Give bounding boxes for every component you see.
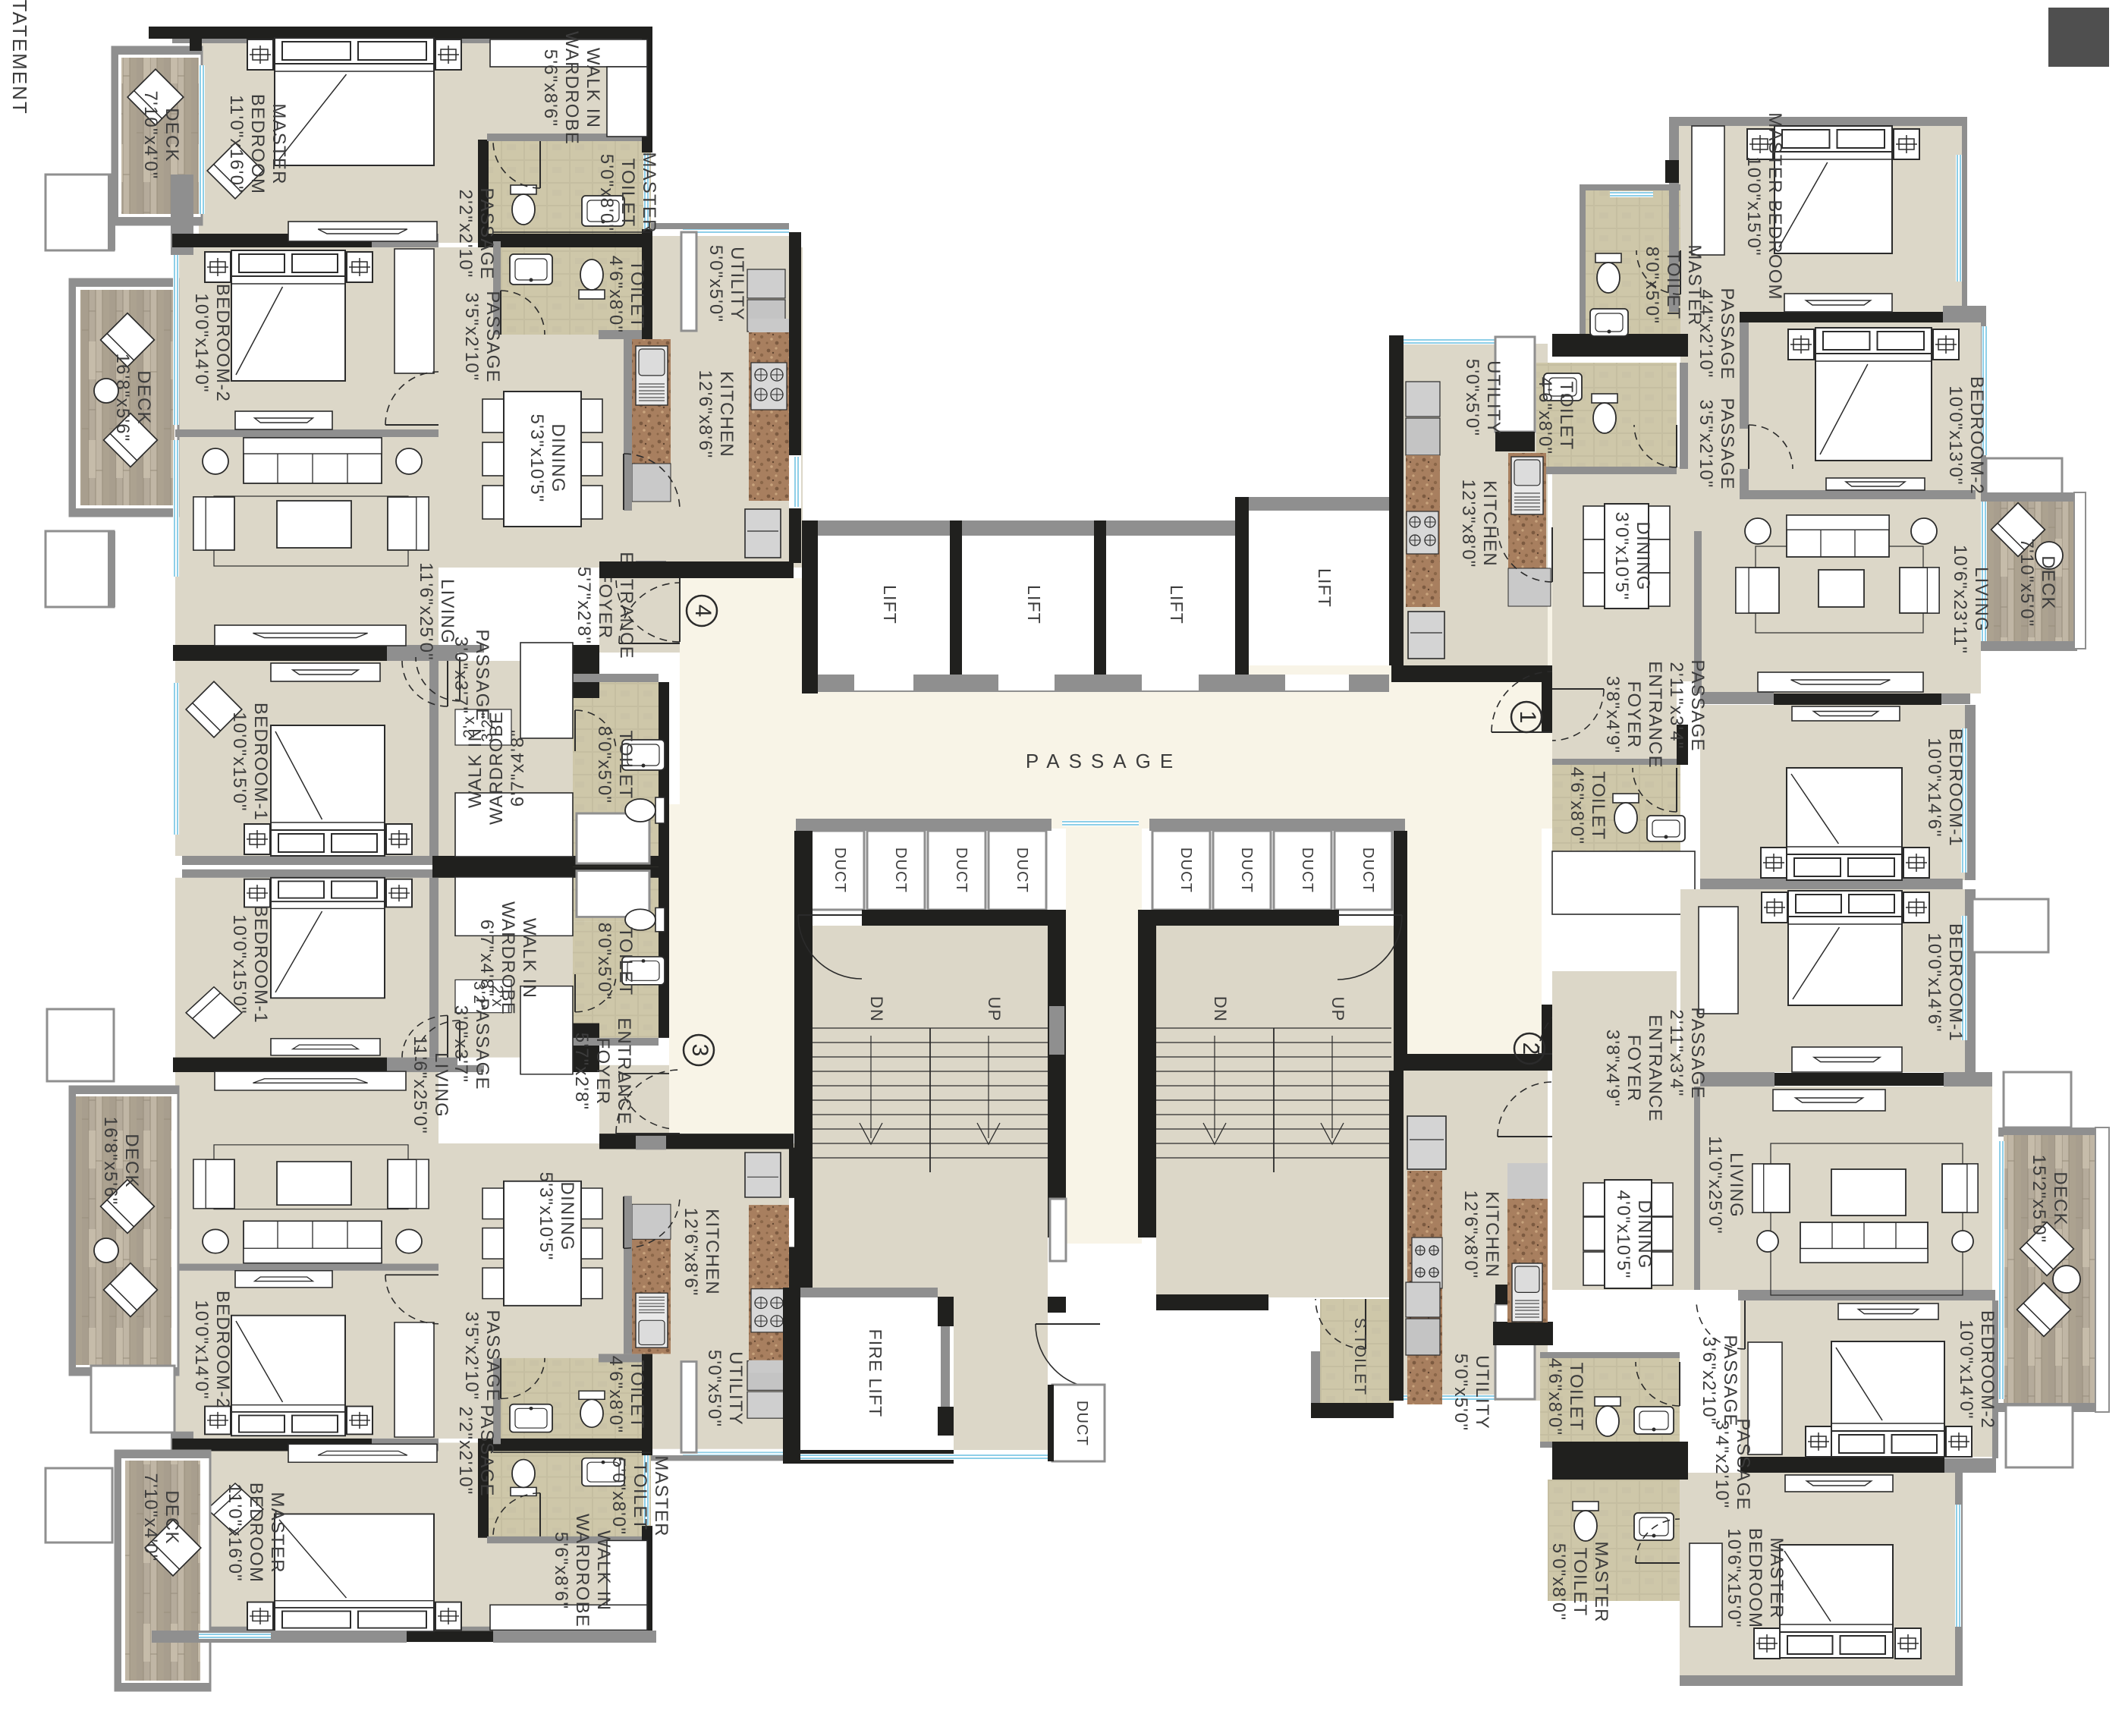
svg-text:BEDROOM-1: BEDROOM-1 [1945,728,1966,847]
svg-text:2'x: 2'x [461,715,478,738]
svg-text:5'0"x8'0": 5'0"x8'0" [608,1458,629,1535]
svg-text:TOILET: TOILET [1663,251,1683,320]
svg-text:TOILET: TOILET [627,1360,647,1429]
svg-text:2'x: 2'x [489,985,506,1008]
svg-text:6'7"x4'8": 6'7"x4'8" [508,729,528,807]
svg-text:PASSAGE: PASSAGE [483,1310,503,1401]
svg-text:PASSAGE: PASSAGE [1687,659,1708,751]
svg-text:DECK: DECK [162,1490,182,1544]
svg-text:BEDROOM: BEDROOM [247,94,268,194]
svg-text:5'6"x8'6": 5'6"x8'6" [540,49,561,127]
svg-text:DINING: DINING [557,1181,577,1250]
svg-text:FOYER: FOYER [1624,681,1644,749]
svg-text:12'3"x8'0": 12'3"x8'0" [1458,480,1479,568]
svg-text:5'0"x5'0": 5'0"x5'0" [1451,1354,1471,1431]
svg-text:FIRE LIFT: FIRE LIFT [866,1329,885,1418]
svg-text:16'8"x5'6": 16'8"x5'6" [112,354,133,442]
svg-text:LIVING: LIVING [431,1052,451,1118]
svg-text:7'10"x4'0": 7'10"x4'0" [140,1473,161,1562]
svg-text:UTILITY: UTILITY [1472,1355,1492,1429]
svg-text:BEDROOM-2: BEDROOM-2 [212,1291,233,1409]
svg-text:3'0"x3'7": 3'0"x3'7" [451,1005,471,1083]
svg-text:2'11"x3'4": 2'11"x3'4" [1666,662,1686,749]
svg-text:PASSAGE: PASSAGE [472,629,492,721]
svg-text:10'0"x14'0": 10'0"x14'0" [191,293,212,393]
svg-text:DUCT: DUCT [831,848,848,893]
svg-text:DUCT: DUCT [892,848,909,893]
svg-text:DECK: DECK [2050,1171,2070,1225]
svg-text:LIFT: LIFT [1024,585,1044,624]
svg-text:3'8"x4'9": 3'8"x4'9" [1602,676,1623,753]
svg-text:STATEMENT: STATEMENT [8,0,31,115]
svg-text:DUCT: DUCT [1299,848,1316,893]
svg-text:7'10"x4'0": 7'10"x4'0" [140,91,161,180]
svg-text:TOILET: TOILET [1556,382,1576,451]
svg-text:5'0"x5'0": 5'0"x5'0" [704,1350,725,1427]
svg-text:DUCT: DUCT [1177,848,1194,893]
svg-text:KITCHEN: KITCHEN [1479,480,1500,567]
svg-text:2'2"x2'10": 2'2"x2'10" [455,190,476,278]
svg-text:4'6"x8'0": 4'6"x8'0" [1545,1358,1565,1436]
svg-text:5'0"x5'0": 5'0"x5'0" [706,245,726,322]
svg-text:3'6"x2'10": 3'6"x2'10" [1699,1337,1719,1426]
svg-text:FOYER: FOYER [1624,1035,1644,1102]
svg-text:PASSAGE: PASSAGE [483,291,503,382]
svg-text:12'6"x8'0": 12'6"x8'0" [1460,1190,1481,1279]
svg-text:5'7"x2'8": 5'7"x2'8" [571,1033,592,1110]
svg-text:3: 3 [687,1044,712,1057]
svg-text:ENTRANCE: ENTRANCE [1645,1014,1665,1122]
svg-text:LIFT: LIFT [880,585,900,624]
svg-text:3'4"x2'10": 3'4"x2'10" [1712,1420,1732,1509]
svg-text:2'2"x2'10": 2'2"x2'10" [455,1407,476,1495]
svg-text:KITCHEN: KITCHEN [1482,1191,1502,1278]
svg-text:FOYER: FOYER [593,1038,613,1105]
svg-text:PASSAGE: PASSAGE [472,998,492,1090]
svg-text:WALK IN: WALK IN [519,918,539,999]
svg-text:WARDROBE: WARDROBE [572,1514,593,1627]
svg-text:UP: UP [1328,997,1347,1022]
svg-text:10'0"x15'0": 10'0"x15'0" [229,712,250,812]
svg-text:5'6"x8'6": 5'6"x8'6" [551,1532,571,1609]
svg-text:TOILET: TOILET [615,927,636,996]
svg-text:LIFT: LIFT [1167,585,1187,624]
svg-text:4'6"x8'0": 4'6"x8'0" [1535,377,1555,454]
svg-text:DECK: DECK [162,108,182,162]
svg-text:3'2": 3'2" [479,712,496,742]
svg-text:5'3"x10'5": 5'3"x10'5" [527,414,547,503]
svg-text:PASSAGE: PASSAGE [476,1404,497,1496]
svg-text:5'0"x8'0": 5'0"x8'0" [596,154,617,231]
svg-text:TOILET: TOILET [1566,1363,1586,1432]
svg-text:11'6"x25'0": 11'6"x25'0" [410,1036,430,1134]
svg-text:DECK: DECK [134,370,154,424]
svg-text:DN: DN [1211,996,1230,1022]
svg-text:WARDROBE: WARDROBE [561,31,582,145]
svg-text:BEDROOM-2: BEDROOM-2 [212,284,233,402]
svg-text:10'0"x15'0": 10'0"x15'0" [1743,156,1764,256]
svg-text:3'0"x3'7": 3'0"x3'7" [451,637,471,714]
svg-text:TOILET: TOILET [627,260,647,329]
svg-text:3'5"x2'10": 3'5"x2'10" [461,1312,482,1401]
svg-text:DUCT: DUCT [953,848,970,893]
svg-text:ENTRANCE: ENTRANCE [1645,661,1665,769]
svg-text:BEDROOM-1: BEDROOM-1 [250,905,271,1024]
svg-text:LIVING: LIVING [1726,1153,1746,1218]
svg-text:10'0"x13'0": 10'0"x13'0" [1945,385,1966,486]
svg-text:12'6"x8'6": 12'6"x8'6" [681,1208,701,1297]
svg-text:BEDROOM-2: BEDROOM-2 [1977,1310,1998,1429]
svg-text:2'11"x3'4": 2'11"x3'4" [1666,1009,1686,1096]
svg-text:4'6"x8'0": 4'6"x8'0" [605,1356,626,1433]
svg-text:5'3"x10'5": 5'3"x10'5" [536,1172,556,1261]
svg-text:PASSAGE: PASSAGE [1733,1418,1753,1510]
svg-text:DUCT: DUCT [1014,848,1030,893]
svg-text:BEDROOM-1: BEDROOM-1 [1945,923,1966,1042]
svg-text:FOYER: FOYER [595,572,615,640]
svg-text:3'5"x2'10": 3'5"x2'10" [461,293,482,382]
svg-text:10'0"x14'6": 10'0"x14'6" [1924,737,1944,838]
svg-text:11'0"x16'0": 11'0"x16'0" [225,1483,245,1582]
svg-text:DINING: DINING [1634,1200,1655,1269]
svg-text:PASSAGE: PASSAGE [1717,398,1737,489]
svg-text:3'8"x4'9": 3'8"x4'9" [1602,1030,1623,1107]
svg-text:3'5"x2'10": 3'5"x2'10" [1696,400,1716,489]
svg-text:10'0"x15'0": 10'0"x15'0" [229,914,250,1014]
svg-text:UTILITY: UTILITY [725,1351,746,1426]
svg-text:10'6"x23'11": 10'6"x23'11" [1950,545,1970,654]
svg-text:BEDROOM: BEDROOM [1745,1528,1765,1628]
svg-text:ENTRANCE: ENTRANCE [614,1017,634,1125]
svg-text:KITCHEN: KITCHEN [716,371,737,458]
svg-text:11'0"x25'0": 11'0"x25'0" [1705,1136,1725,1234]
svg-text:WALK IN: WALK IN [583,48,603,128]
svg-text:BEDROOM-1: BEDROOM-1 [250,703,271,821]
svg-text:DUCT: DUCT [1074,1401,1090,1446]
svg-text:8'0"x5'0": 8'0"x5'0" [594,923,615,1000]
svg-text:DECK: DECK [2038,555,2058,609]
svg-text:10'0"x14'0": 10'0"x14'0" [191,1300,212,1400]
svg-text:1: 1 [1515,711,1540,724]
svg-text:4'0"x10'5": 4'0"x10'5" [1613,1190,1633,1279]
svg-text:MASTER: MASTER [651,1455,671,1536]
svg-text:PASSAGE: PASSAGE [1720,1335,1740,1426]
svg-text:7'10"x5'0": 7'10"x5'0" [2017,539,2037,627]
svg-text:DECK: DECK [121,1134,142,1187]
svg-text:11'6"x25'0": 11'6"x25'0" [416,562,436,661]
svg-text:10'6"x15'0": 10'6"x15'0" [1724,1528,1744,1628]
svg-text:DUCT: DUCT [1360,848,1376,893]
svg-text:S.TOILET: S.TOILET [1351,1318,1369,1396]
svg-text:UP: UP [985,997,1004,1022]
svg-text:4'6"x8'0": 4'6"x8'0" [605,256,626,333]
svg-text:MASTER BEDROOM: MASTER BEDROOM [1765,112,1785,300]
svg-text:3'0"x10'5": 3'0"x10'5" [1611,512,1632,601]
svg-text:BEDROOM-2: BEDROOM-2 [1966,376,1987,495]
svg-text:PASSAGE: PASSAGE [476,187,497,279]
svg-text:DINING: DINING [548,423,568,492]
svg-text:LIVING: LIVING [437,579,457,644]
svg-text:10'0"x14'0": 10'0"x14'0" [1956,1319,1976,1420]
svg-text:MASTER: MASTER [267,1492,288,1573]
svg-text:TOILET: TOILET [615,731,636,800]
svg-text:DINING: DINING [1633,521,1653,590]
svg-text:LIFT: LIFT [1315,568,1334,608]
svg-text:MASTER: MASTER [1766,1537,1787,1618]
svg-text:PASSAGE: PASSAGE [1026,750,1182,772]
svg-text:WALK IN: WALK IN [593,1530,614,1611]
svg-text:11'0"x16'0": 11'0"x16'0" [226,95,247,193]
svg-text:UTILITY: UTILITY [1483,360,1504,435]
svg-text:10'0"x14'6": 10'0"x14'6" [1924,932,1944,1033]
svg-text:TOILET: TOILET [1570,1548,1590,1617]
svg-text:PASSAGE: PASSAGE [1687,1007,1708,1099]
svg-text:TOILET: TOILET [630,1462,650,1531]
svg-text:TOILET: TOILET [618,159,638,228]
svg-text:4: 4 [690,605,715,618]
svg-text:3'2": 3'2" [470,981,488,1011]
svg-text:DN: DN [867,996,886,1022]
svg-text:5'0"x5'0": 5'0"x5'0" [1462,359,1482,436]
svg-text:MASTER: MASTER [269,103,289,184]
svg-text:12'6"x8'6": 12'6"x8'6" [695,370,715,459]
svg-text:15'2"x5'0": 15'2"x5'0" [2029,1155,2049,1244]
svg-text:4'6"x8'0": 4'6"x8'0" [1567,767,1587,844]
svg-text:KITCHEN: KITCHEN [702,1209,722,1295]
svg-text:UTILITY: UTILITY [727,247,747,321]
svg-text:PASSAGE: PASSAGE [1717,288,1737,379]
svg-text:16'8"x5'6": 16'8"x5'6" [100,1117,121,1206]
svg-text:TOILET: TOILET [1588,772,1608,841]
svg-text:8'0"x5'0": 8'0"x5'0" [1642,247,1662,324]
svg-text:DUCT: DUCT [1238,848,1255,893]
svg-text:LIVING: LIVING [1971,567,1991,632]
svg-text:MASTER: MASTER [639,152,659,233]
svg-text:8'0"x5'0": 8'0"x5'0" [594,726,615,804]
svg-text:BEDROOM: BEDROOM [246,1483,266,1583]
svg-text:MASTER: MASTER [1591,1541,1611,1622]
svg-text:5'0"x8'0": 5'0"x8'0" [1548,1543,1569,1621]
svg-text:4'4"x2'10": 4'4"x2'10" [1696,290,1716,379]
svg-text:5'7"x2'8": 5'7"x2'8" [574,567,594,644]
